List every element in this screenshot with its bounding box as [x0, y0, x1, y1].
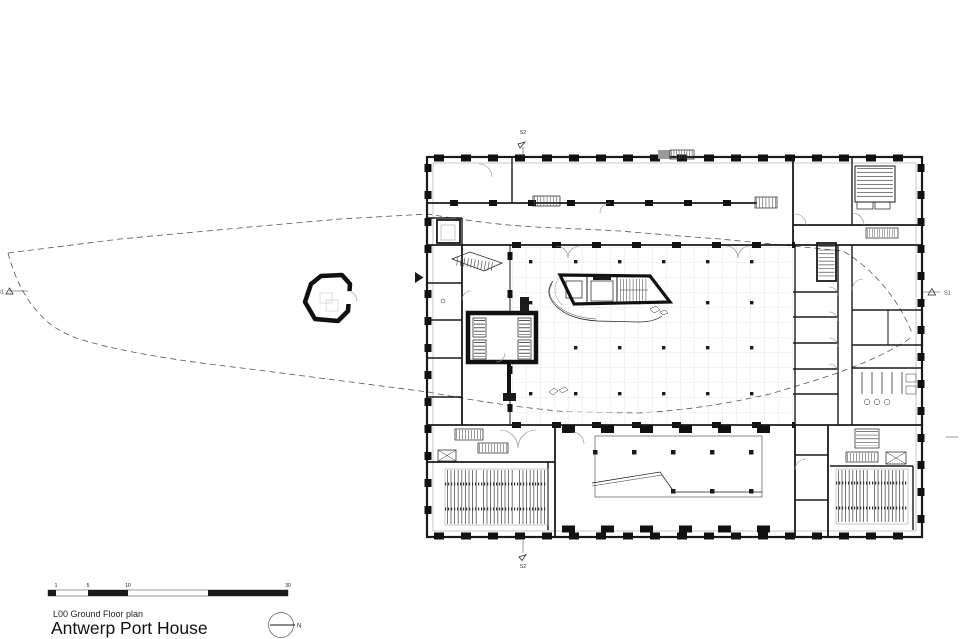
keel-volume	[549, 275, 670, 322]
scale-tick-30: 30	[285, 583, 291, 589]
north-arrow: N	[269, 613, 302, 638]
elevator-core	[441, 297, 536, 401]
auditorium-right-seating	[836, 469, 908, 524]
wc-fixtures	[862, 372, 916, 405]
section-marker-s2-bottom: S2	[519, 540, 526, 570]
stairs-southwest	[438, 429, 508, 461]
courtyard	[562, 429, 793, 529]
scale-bar: 1 5 10 30	[48, 583, 291, 596]
atrium-floor-objects	[549, 387, 568, 395]
scale-tick-10: 10	[125, 583, 131, 589]
s1-right-label: S1	[944, 291, 951, 297]
pavilion	[305, 275, 357, 321]
pavilion-door-opening	[344, 291, 353, 304]
drawing-sheet: S2 S2 S1 S1 1 5 10 30 L00 Ground Floor p…	[0, 0, 960, 639]
s1-left-label: S1	[0, 290, 4, 296]
courtyard-column-dots	[593, 450, 754, 494]
s2-bottom-label: S2	[520, 564, 527, 570]
section-marker-s1-left: S1	[0, 288, 28, 296]
pavilion-walls	[305, 275, 350, 321]
escalator-skylight	[452, 252, 502, 271]
page-title: Antwerp Port House	[51, 618, 208, 638]
east-rooms	[793, 243, 922, 425]
floor-plan-drawing: S2 S2 S1 S1 1 5 10 30 L00 Ground Floor p…	[0, 0, 960, 639]
north-label: N	[297, 624, 301, 630]
keel-debris-shape	[660, 310, 668, 315]
south-wing	[427, 425, 922, 537]
building-plan	[427, 150, 922, 537]
section-marker-s1-right: S1	[921, 289, 951, 297]
scale-tick-5: 5	[87, 583, 90, 589]
scale-tick-1: 1	[55, 583, 58, 589]
stair-top-right	[855, 166, 895, 209]
section-marker-s2-top: S2	[518, 130, 526, 158]
stair-small-northeast	[866, 228, 898, 238]
atrium-floor-grid	[512, 247, 793, 423]
s2-bottom-arrow-icon	[519, 555, 526, 561]
s2-top-arrow-icon	[518, 142, 525, 148]
title-block: L00 Ground Floor plan Antwerp Port House	[51, 609, 208, 638]
courtyard-ramp	[592, 475, 676, 494]
north-wing	[427, 157, 922, 245]
s2-top-label: S2	[520, 130, 527, 136]
stairs-southeast	[846, 429, 906, 464]
auditorium-left-seating	[445, 469, 548, 525]
entrance-arrow-icon	[415, 272, 424, 283]
stair-corridor-west	[533, 196, 560, 206]
stair-corridor-east	[755, 197, 777, 208]
